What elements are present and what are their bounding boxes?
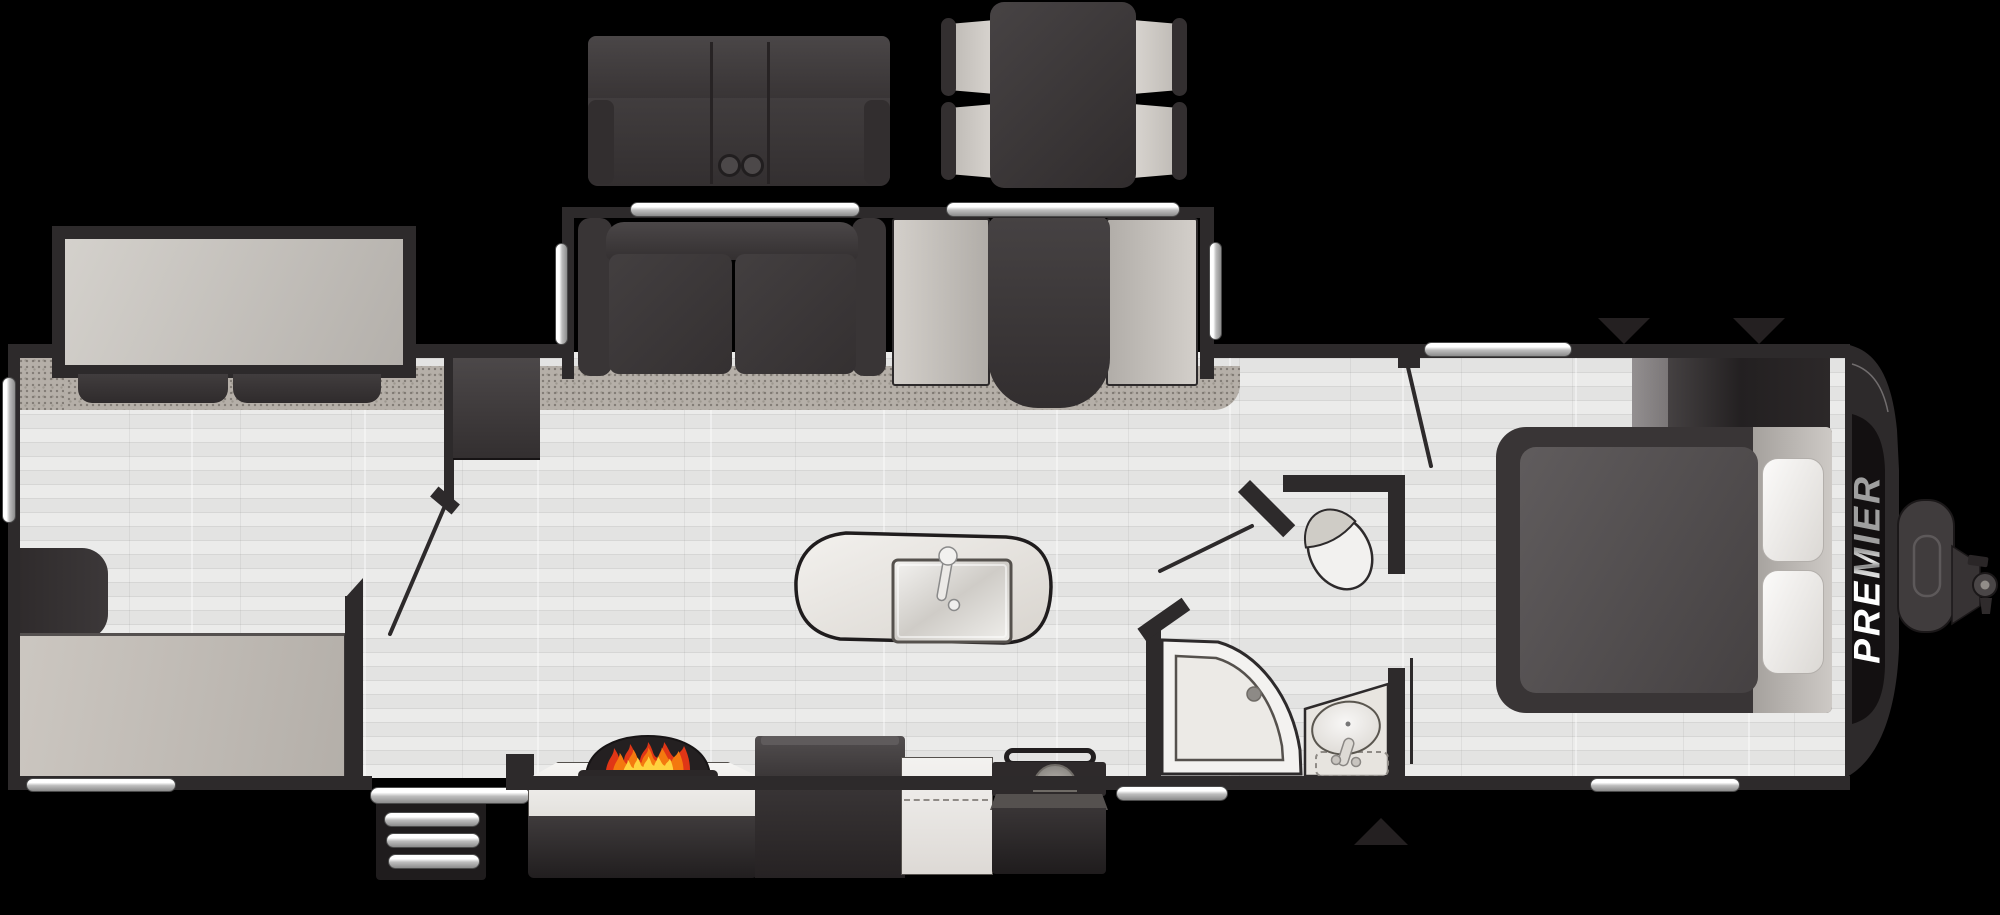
marker-triangle-down-icon — [1733, 318, 1785, 344]
marker-triangle-down-icon — [1598, 318, 1650, 344]
window-bedroom-bottom — [1590, 778, 1740, 792]
window-bedroom-top — [1424, 342, 1572, 357]
wall-top-seg1 — [8, 344, 52, 358]
window-slide-left-end — [555, 243, 568, 345]
marker-triangle-up-icon — [1354, 818, 1408, 845]
window-bath-bottom — [1116, 786, 1228, 801]
window-slide-dinette — [946, 202, 1180, 217]
rear-room-door-line — [390, 508, 444, 634]
window-rear-wall — [2, 377, 16, 523]
brand-label: PREMIER — [1847, 474, 1888, 664]
wall-top-seg2 — [416, 344, 562, 358]
bathroom-door-line — [1160, 526, 1252, 571]
bedroom-door-line — [1407, 363, 1431, 466]
window-slide-right-end — [1209, 242, 1222, 340]
hitch-assembly — [1898, 500, 1997, 632]
rv-floorplan: PREMIER — [0, 0, 2000, 915]
window-rear-bottom — [26, 778, 176, 792]
front-cap: PREMIER — [1822, 318, 2000, 800]
window-slide-sofa — [630, 202, 860, 217]
